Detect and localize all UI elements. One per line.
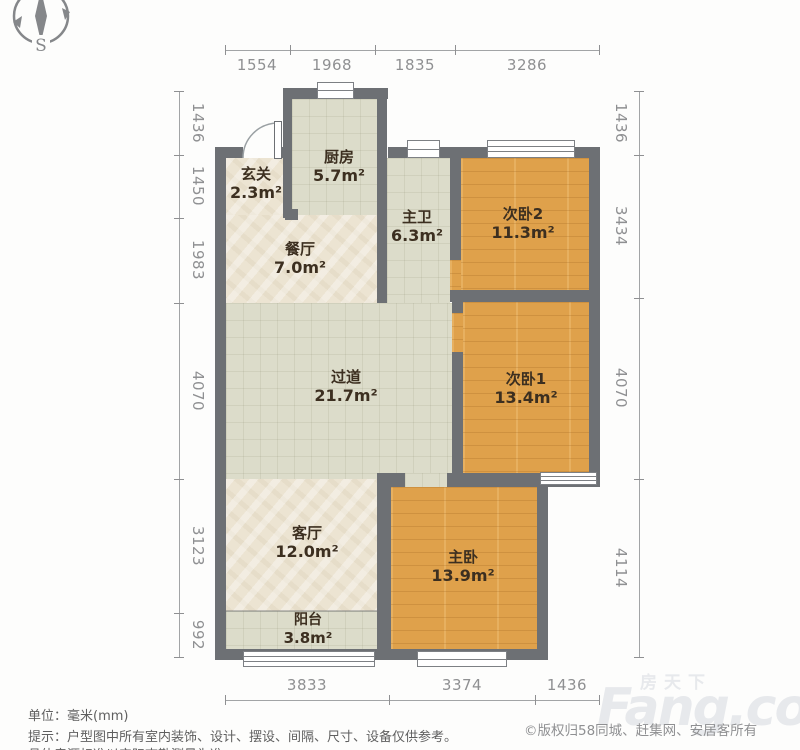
bedroom2-door-gap	[450, 260, 461, 290]
dim-top-4: 3286	[507, 56, 547, 74]
room-name: 次卧2	[491, 205, 554, 223]
wall	[537, 473, 548, 660]
wall	[215, 147, 226, 660]
dim-right-1: 1436	[612, 103, 630, 143]
room-label-entry: 玄关 2.3m²	[230, 165, 282, 202]
dim-bottom-1: 3833	[287, 676, 327, 694]
dimension-line-left	[179, 91, 180, 658]
tick	[174, 91, 184, 92]
wall	[450, 290, 600, 302]
dim-top-2: 1968	[312, 56, 352, 74]
room-label-dining: 餐厅 7.0m²	[274, 240, 326, 277]
room-name: 次卧1	[494, 370, 557, 388]
room-area: 11.3m²	[491, 223, 554, 242]
room-area: 13.9m²	[431, 566, 494, 585]
master-door-gap	[405, 473, 447, 487]
dim-right-3: 4070	[612, 368, 630, 408]
bedroom2-window	[487, 140, 575, 158]
entry-door-leaf	[274, 121, 282, 159]
wall	[589, 147, 600, 487]
room-name: 客厅	[275, 524, 338, 542]
room-label-bedroom1: 次卧1 13.4m²	[494, 370, 557, 407]
room-area: 12.0m²	[275, 542, 338, 561]
dimension-line-right	[639, 91, 640, 658]
room-label-hallway: 过道 21.7m²	[314, 368, 377, 405]
room-name: 阳台	[284, 612, 333, 629]
wall	[377, 99, 387, 303]
balcony-window	[243, 651, 375, 667]
dim-left-4: 4070	[189, 371, 207, 411]
dim-right-4: 4114	[612, 548, 630, 588]
dim-left-1: 1436	[189, 103, 207, 143]
copyright-note: ©版权归58同城、赶集网、安居客所有	[524, 719, 757, 739]
dimension-line-bottom	[225, 700, 600, 701]
wall	[452, 302, 463, 313]
room-area: 21.7m²	[314, 386, 377, 405]
room-name: 主卧	[431, 548, 494, 566]
dim-bottom-2: 3374	[442, 676, 482, 694]
dim-left-6: 992	[189, 620, 207, 650]
room-label-master: 主卧 13.9m²	[431, 548, 494, 585]
room-name: 餐厅	[274, 240, 326, 258]
dim-top-3: 1835	[395, 56, 435, 74]
tip-note-line2: 具体房源标准以实际查勘测量为准。	[28, 744, 236, 750]
room-label-living: 客厅 12.0m²	[275, 524, 338, 561]
wall	[377, 479, 391, 660]
tick	[389, 695, 390, 705]
tick	[634, 91, 644, 92]
tick	[174, 657, 184, 658]
room-area: 5.7m²	[313, 166, 365, 185]
tick	[634, 155, 644, 156]
room-label-bathroom: 主卫 6.3m²	[391, 208, 443, 245]
tick	[634, 479, 644, 480]
room-area: 13.4m²	[494, 388, 557, 407]
tick	[290, 45, 291, 55]
kitchen-window	[317, 82, 354, 99]
room-area: 7.0m²	[274, 258, 326, 277]
room-name: 厨房	[313, 148, 365, 166]
room-label-kitchen: 厨房 5.7m²	[313, 148, 365, 185]
room-area: 2.3m²	[230, 183, 282, 202]
master-window	[417, 651, 507, 667]
tick	[375, 45, 376, 55]
tick	[225, 695, 226, 705]
room-label-balcony: 阳台 3.8m²	[284, 612, 333, 647]
wall	[452, 352, 463, 473]
dim-left-5: 3123	[189, 526, 207, 566]
wall	[450, 158, 461, 260]
dim-bottom-3: 1436	[547, 676, 587, 694]
wall	[440, 147, 487, 158]
bathroom-window	[407, 140, 440, 158]
dimension-line-top	[225, 50, 600, 51]
bedroom1-door-gap	[452, 313, 463, 352]
tick	[455, 45, 456, 55]
bedroom1-window	[540, 472, 597, 485]
tick	[599, 45, 600, 55]
tick	[225, 45, 226, 55]
tick	[174, 479, 184, 480]
tick	[174, 155, 184, 156]
dim-left-3: 1983	[189, 240, 207, 280]
tick	[535, 695, 536, 705]
wall	[285, 209, 298, 220]
room-name: 玄关	[230, 165, 282, 183]
room-name: 主卫	[391, 208, 443, 226]
tip-note-line1: 提示：户型图中所有室内装饰、设计、摆设、间隔、尺寸、设备仅供参考。	[28, 726, 457, 745]
floor-plan-canvas: S 玄关 2.3m² 厨房 5	[0, 0, 800, 750]
tick	[634, 657, 644, 658]
room-name: 过道	[314, 368, 377, 386]
wall	[447, 473, 537, 487]
room-area: 6.3m²	[391, 226, 443, 245]
tick	[174, 613, 184, 614]
room-area: 3.8m²	[284, 629, 333, 647]
dim-left-2: 1450	[189, 166, 207, 206]
dim-top-1: 1554	[237, 56, 277, 74]
tick	[174, 303, 184, 304]
tick	[634, 298, 644, 299]
tick	[174, 218, 184, 219]
unit-note: 单位：毫米(mm)	[28, 705, 128, 724]
room-label-bedroom2: 次卧2 11.3m²	[491, 205, 554, 242]
wall	[388, 147, 407, 158]
dim-right-2: 3434	[612, 206, 630, 246]
